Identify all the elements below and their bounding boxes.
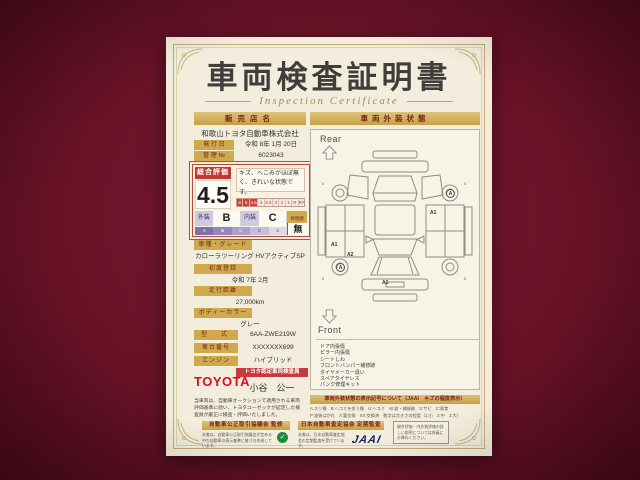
exterior-grade: B (213, 211, 242, 226)
interior-label: 内装 (241, 211, 259, 226)
tire-tread-mark: 6 (322, 277, 324, 281)
field-label-chassis-number: 車台番号 (194, 343, 238, 353)
grade-scale-bar: A B C D E (195, 227, 287, 235)
corner-flourish-icon (453, 417, 483, 447)
legend-line: P:塗装はがれ X:要交換 XX:交換済 数字は大きさの程度（1:小 2:中 3… (310, 413, 480, 420)
exterior-label: 外装 (195, 211, 213, 226)
dealer-name: 和歌山トヨタ自動車株式会社 (194, 128, 306, 139)
photo-background: { "certificate": { "title": "車両検査証明書", "… (0, 0, 640, 480)
tire-tread-mark: 6 (464, 277, 466, 281)
interior-grade: C (259, 211, 288, 226)
front-arrow-icon (322, 309, 337, 324)
fair-trade-council-logo-icon: ✓ (277, 432, 288, 443)
fair-trade-council-note: 本書は、自動車公正取引協議会が定める中古自動車の表示基準に基づき作成しています。 (202, 432, 274, 449)
damage-mark: A1 (430, 211, 436, 216)
car-diagram-icon (316, 149, 474, 307)
tire-tread-mark: 6 (322, 182, 324, 186)
grade-cell: A (195, 227, 213, 235)
inquiry-notice-box: 総合評価・内外装評価の詳しい説明については係員にお尋ねください。 (393, 421, 449, 444)
damage-mark: A1 (382, 281, 388, 286)
corner-flourish-icon (175, 417, 205, 447)
certificate-title: 車両検査証明書 (166, 52, 492, 97)
scale-cell: 3.5 (265, 199, 273, 206)
dealer-section-header: 販売店名 (194, 112, 306, 125)
field-value-chassis-number: XXXXXXX699 (240, 343, 306, 353)
front-label: Front (318, 325, 342, 335)
inspector-name: 小谷 公一 (236, 381, 308, 394)
damage-mark: A2 (347, 253, 353, 258)
field-value-model-grade: カローラツーリング HVアクティブSP (194, 252, 306, 262)
tire-tread-mark: 6 (464, 182, 466, 186)
overall-rating-box: 総合評価 4.5 キズ、ヘこみがほぼ無く、きれいな状態です。 S 5 4.5 4… (192, 164, 310, 237)
symbol-legend: A:スリ傷 B:ヘコミを伴う傷 U:ヘコミ W:波・補修跡 S:サビ C:腐食 … (310, 406, 480, 419)
rear-label: Rear (320, 134, 342, 144)
scale-cell: 4.5 (250, 199, 259, 206)
certificate-subtitle: Inspection Certificate (259, 95, 399, 107)
damage-mark-wheel: A (336, 263, 345, 272)
field-label-first-registration: 初度登録 (194, 264, 252, 274)
overall-rating-label: 総合評価 (195, 167, 231, 179)
field-label-engine: エンジン (194, 356, 238, 366)
field-label-model-grade: 車種・グレード (194, 240, 252, 250)
field-value-mileage: 27,000km (194, 298, 306, 308)
field-label-body-color: ボディーカラー (194, 308, 252, 318)
field-value-engine: ハイブリッド (240, 356, 306, 366)
scale-cell: RA (299, 199, 304, 206)
jaai-audit-note: 本書は、日本自動車査定協会の定期監査を受けています。 (298, 432, 348, 449)
repair-history-value: 無 (287, 223, 308, 235)
grade-cell: E (269, 227, 287, 235)
damage-mark: A1 (331, 243, 337, 248)
issue-date-value: 令和 8年 1月 20日 (236, 140, 306, 150)
field-value-model-code: 6AA-ZWE219W (240, 330, 306, 340)
exterior-condition-header: 車両外装状態 (310, 112, 480, 125)
rating-comment: キズ、ヘこみがほぼ無く、きれいな状態です。 (236, 168, 305, 192)
field-value-body-color: グレー (194, 320, 306, 330)
grade-cell: B (213, 227, 231, 235)
field-label-mileage: 走行距離 (194, 286, 252, 296)
damage-mark-wheel: A (446, 189, 455, 198)
control-number-value: 6023043 (236, 151, 306, 161)
condition-notes-list: ドア内張傷 ピラー内張傷 シートしわ フロントバンパー補修跡 タイヤメーカー違い… (316, 339, 480, 389)
condition-note: パンク修理キット (320, 382, 478, 388)
issue-date-label: 発 行 日 (194, 140, 234, 150)
grade-cell: C (232, 227, 250, 235)
car-top-view-diagram: A1 A2 A1 A A A1 6 6 6 6 (316, 149, 474, 307)
grade-cell: D (250, 227, 268, 235)
inspection-certificate: 車両検査証明書 Inspection Certificate 販売店名 和歌山ト… (166, 37, 492, 456)
field-label-model-code: 型 式 (194, 330, 238, 340)
control-number-label: 管 理 № (194, 151, 234, 161)
field-value-first-registration: 令和 7年 2月 (194, 276, 306, 286)
jaai-audit-header: 日本自動車査定協会 定期監査 (298, 421, 384, 430)
jaai-logo: JAAI (351, 434, 383, 446)
fair-trade-council-header: 自動車公正取引協議会 監修 (202, 421, 290, 430)
symbol-legend-header: 車両外装状態の表示記号について（JAAI キズの程度表示） (310, 395, 480, 404)
subtitle-rule-right (407, 101, 453, 102)
rating-scale-bar: S 5 4.5 4 3.5 3 2 1 R RA (236, 198, 305, 207)
inspection-disclaimer: 当車両は、自動車オークションで適用される車両評価基準に倣い、トヨタユーゼックが認… (194, 398, 300, 420)
overall-rating-score: 4.5 (195, 180, 231, 209)
certificate-subtitle-row: Inspection Certificate (166, 95, 492, 107)
subtitle-rule-left (205, 101, 251, 102)
